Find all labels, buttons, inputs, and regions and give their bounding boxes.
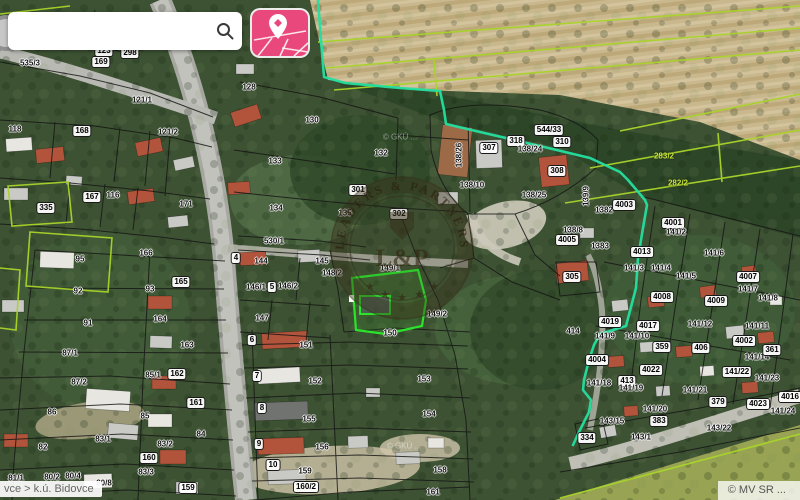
building — [770, 296, 782, 305]
building — [611, 299, 628, 312]
building — [348, 436, 368, 449]
map-style-button[interactable] — [252, 10, 308, 56]
breadcrumb: vce > k.ú. Bidovce — [0, 481, 102, 497]
building — [742, 381, 759, 393]
building — [148, 414, 172, 427]
building — [298, 249, 321, 262]
building — [608, 355, 625, 367]
building — [268, 469, 306, 484]
building — [176, 482, 198, 494]
building — [6, 137, 33, 152]
building — [580, 228, 594, 238]
building — [476, 140, 503, 169]
building — [539, 155, 570, 188]
search-input[interactable] — [20, 22, 208, 40]
building — [366, 388, 380, 397]
building — [2, 300, 24, 312]
map-copyright: © MV SR ... — [718, 481, 800, 500]
building — [757, 331, 774, 344]
building — [258, 437, 305, 455]
search-icon[interactable] — [208, 14, 242, 48]
building — [167, 215, 188, 228]
building — [647, 295, 664, 308]
building — [107, 423, 138, 441]
building — [35, 147, 64, 164]
building — [152, 376, 176, 389]
selected-parcel-outline[interactable] — [349, 270, 426, 334]
building — [160, 450, 186, 464]
building — [85, 388, 130, 411]
aerial-map-canvas — [0, 0, 800, 500]
building — [148, 296, 172, 309]
building — [640, 342, 655, 353]
building — [258, 367, 301, 384]
search-bar — [8, 12, 242, 50]
map-with-pin-icon — [252, 10, 308, 56]
building — [624, 406, 639, 417]
building — [428, 438, 444, 448]
building — [40, 251, 75, 268]
building — [396, 452, 420, 465]
building — [150, 336, 172, 349]
building — [254, 401, 309, 421]
map-viewport[interactable]: 123298169535/3128121/1118168121/21301321… — [0, 0, 800, 500]
building — [437, 125, 472, 178]
building — [599, 425, 617, 439]
building — [240, 251, 267, 265]
building — [555, 260, 589, 283]
building — [676, 345, 693, 357]
building — [725, 325, 744, 339]
building — [236, 64, 254, 74]
